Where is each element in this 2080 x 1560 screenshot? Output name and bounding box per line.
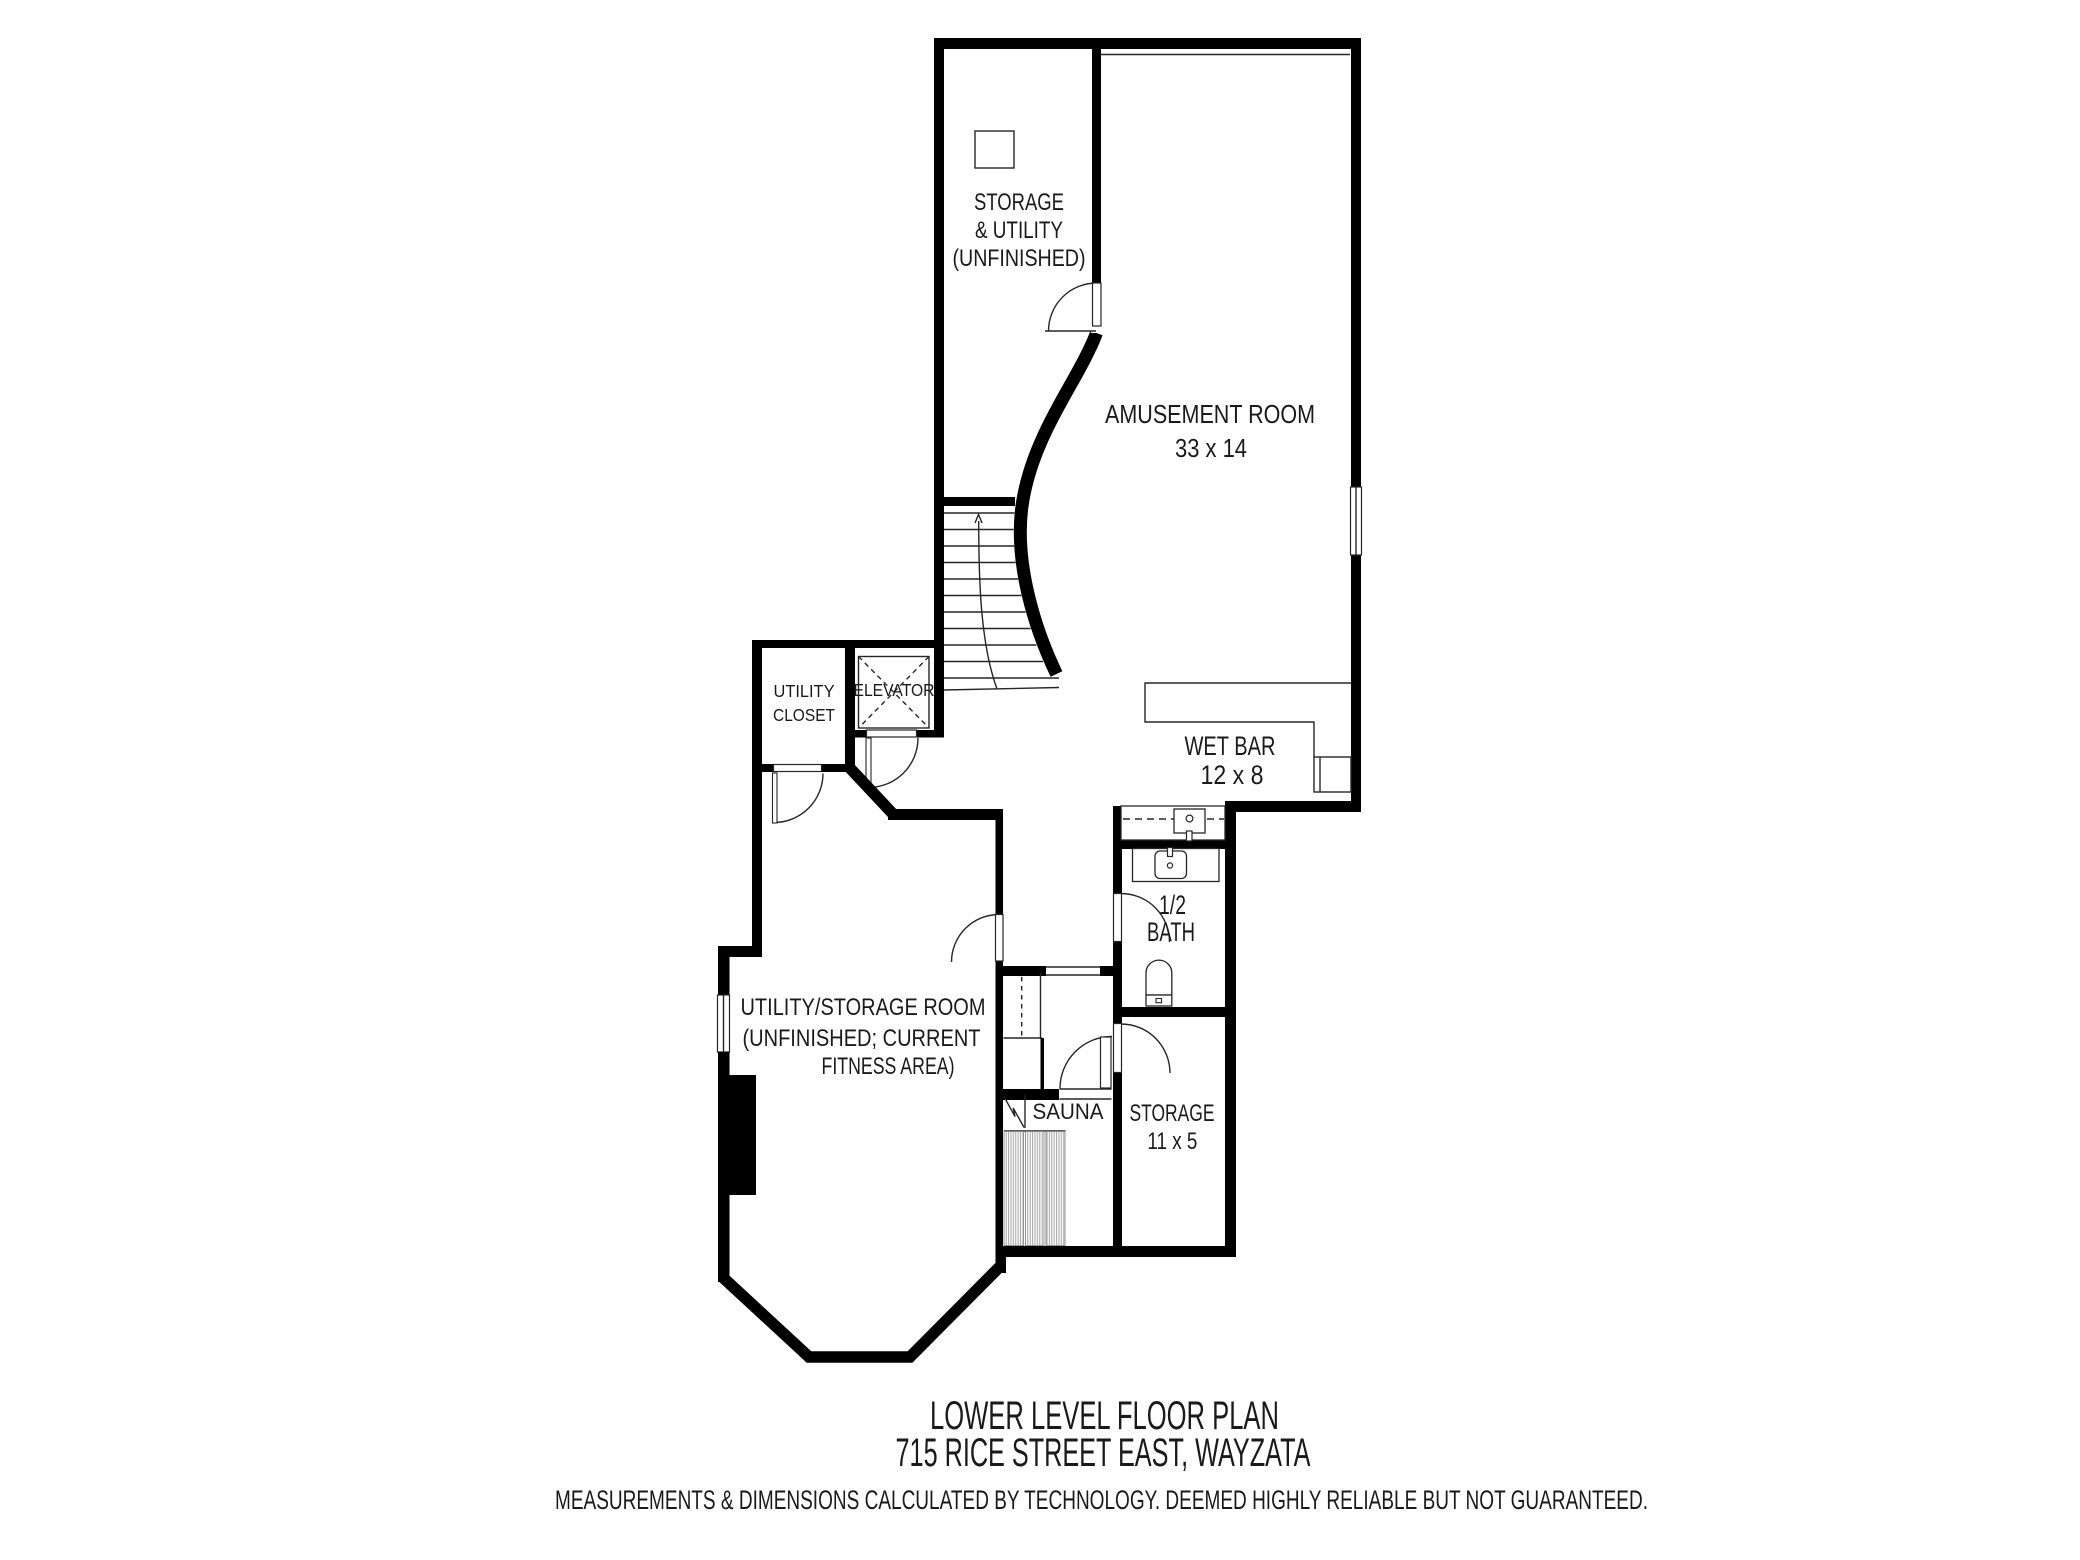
svg-text:715 RICE STREET EAST, WAYZATA: 715 RICE STREET EAST, WAYZATA xyxy=(896,1431,1311,1475)
svg-text:& UTILITY: & UTILITY xyxy=(975,217,1063,244)
svg-text:FITNESS AREA): FITNESS AREA) xyxy=(822,1053,955,1080)
svg-text:UTILITY: UTILITY xyxy=(774,681,835,701)
svg-text:11 x 5: 11 x 5 xyxy=(1147,1128,1197,1155)
svg-text:12 x 8: 12 x 8 xyxy=(1201,760,1264,790)
svg-text:1/2: 1/2 xyxy=(1159,890,1186,920)
svg-text:ELEVATOR: ELEVATOR xyxy=(854,680,935,700)
svg-text:WET BAR: WET BAR xyxy=(1185,731,1276,761)
svg-text:BATH: BATH xyxy=(1147,917,1195,947)
svg-text:MEASUREMENTS & DIMENSIONS CALC: MEASUREMENTS & DIMENSIONS CALCULATED BY … xyxy=(555,1485,1648,1515)
svg-text:(UNFINISHED; CURRENT: (UNFINISHED; CURRENT xyxy=(743,1025,981,1052)
svg-text:CLOSET: CLOSET xyxy=(773,705,835,725)
svg-text:(UNFINISHED): (UNFINISHED) xyxy=(953,245,1086,272)
svg-text:AMUSEMENT ROOM: AMUSEMENT ROOM xyxy=(1105,401,1315,429)
svg-text:SAUNA: SAUNA xyxy=(1033,1099,1104,1124)
svg-text:STORAGE: STORAGE xyxy=(1130,1100,1215,1127)
svg-text:UTILITY/STORAGE ROOM: UTILITY/STORAGE ROOM xyxy=(741,994,986,1021)
svg-text:STORAGE: STORAGE xyxy=(974,189,1064,216)
svg-text:33 x 14: 33 x 14 xyxy=(1175,435,1247,463)
